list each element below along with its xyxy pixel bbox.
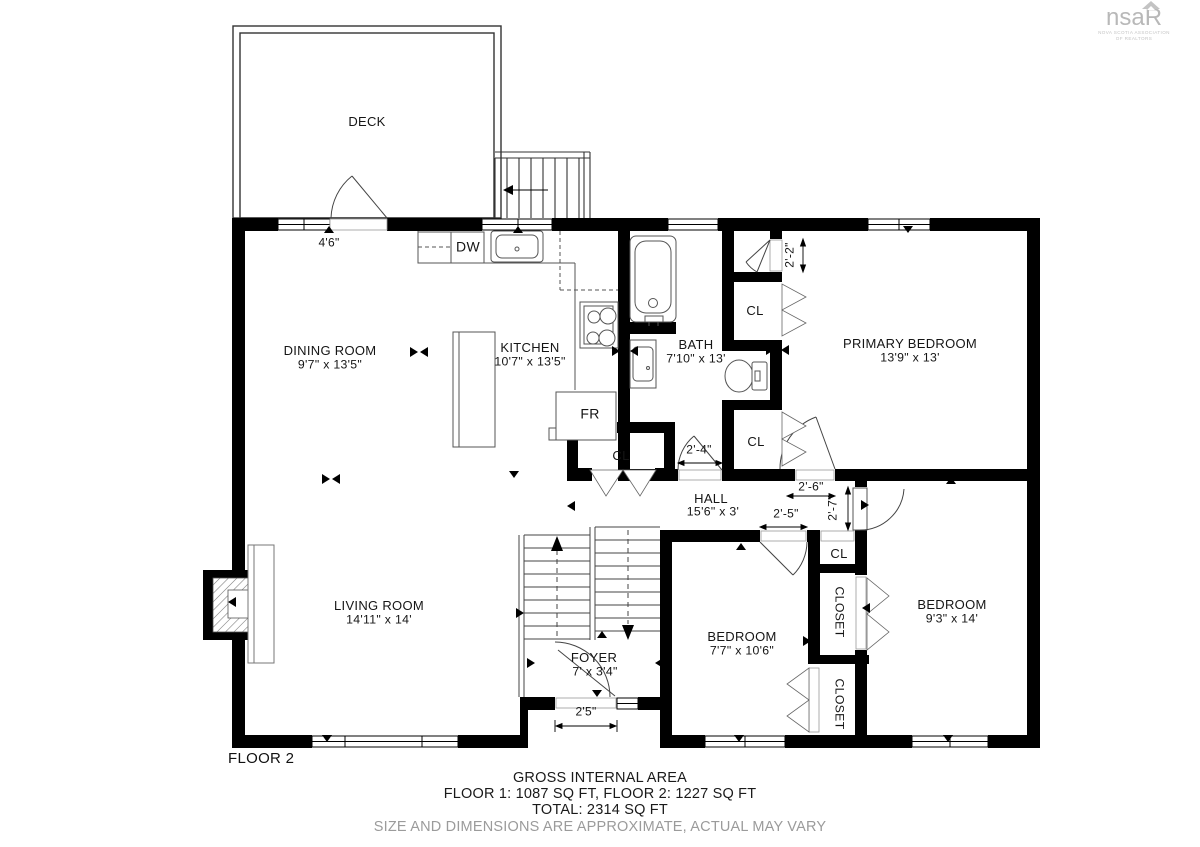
bathtub-icon — [630, 236, 676, 326]
room-label-kitchen: KITCHEN — [500, 341, 559, 355]
room-dims-dining: 9'7" x 13'5" — [298, 359, 362, 372]
footer-floor-areas: FLOOR 1: 1087 SQ FT, FLOOR 2: 1227 SQ FT — [0, 786, 1200, 802]
stairs-up-arrow-icon — [551, 536, 563, 551]
closet-label-bath-lower: CL — [747, 435, 764, 449]
room-label-bath: BATH — [679, 338, 714, 352]
dim-primary-door: 2'-6" — [798, 481, 823, 494]
kitchen-sink-icon — [491, 231, 543, 262]
floor-plan-drawing — [0, 0, 1200, 847]
closet-label-linen: CL — [830, 547, 847, 561]
room-label-foyer: FOYER — [571, 651, 617, 665]
logo-text-ns: ns — [1106, 4, 1131, 31]
room-dims-bath: 7'10" x 13' — [666, 353, 726, 366]
room-label-bedroom2: BEDROOM — [917, 598, 986, 612]
toilet-icon — [725, 360, 767, 392]
dim-deck-door: 4'6" — [318, 237, 339, 250]
closet-label-hall: CL — [612, 449, 629, 463]
closet-label-1: CLOSET — [833, 587, 846, 638]
dim-bedroom1-door: 2'-5" — [773, 508, 798, 521]
room-label-primary-bedroom: PRIMARY BEDROOM — [843, 337, 977, 351]
floor-plan-canvas: DECK DINING ROOM 9'7" x 13'5" KITCHEN 10… — [0, 0, 1200, 847]
closet-label-2: CLOSET — [833, 679, 846, 730]
dim-entry-door: 2'5" — [575, 706, 596, 719]
dishwasher-label: DW — [456, 240, 480, 255]
house-roof-inner-icon — [1147, 6, 1155, 10]
room-dims-living: 14'11" x 14' — [346, 614, 412, 627]
room-dims-hall: 15'6" x 3' — [687, 506, 739, 519]
dim-bath-door: 2'-4" — [686, 444, 711, 457]
room-dims-bedroom2: 9'3" x 14' — [926, 613, 978, 626]
room-label-living: LIVING ROOM — [334, 599, 424, 613]
footer-disclaimer: SIZE AND DIMENSIONS ARE APPROXIMATE, ACT… — [0, 819, 1200, 835]
fridge-label: FR — [580, 407, 599, 422]
stairs-down-arrow-icon — [622, 625, 634, 640]
room-dims-bedroom1: 7'7" x 10'6" — [710, 645, 774, 658]
room-label-dining: DINING ROOM — [284, 344, 377, 358]
room-label-deck: DECK — [348, 115, 385, 129]
footer-gross-area: GROSS INTERNAL AREA — [0, 770, 1200, 786]
closet-label-bath-upper: CL — [746, 304, 763, 318]
nsar-logo: nsaR NOVA SCOTIA ASSOCIATION OF REALTORS — [1086, 6, 1182, 42]
dim-bedroom2-door: 2'-7" — [827, 495, 840, 520]
deck-stairs-arrow-icon — [503, 185, 513, 195]
logo-tagline-2: OF REALTORS — [1086, 36, 1182, 42]
bath-sink-icon — [630, 340, 656, 388]
deck-stairs — [495, 152, 590, 218]
dim-primary-nook: 2'-2" — [784, 242, 797, 267]
room-dims-foyer: 7' x 3'4" — [572, 666, 617, 679]
kitchen-island — [453, 332, 495, 447]
stove-icon — [580, 302, 618, 348]
room-label-bedroom1: BEDROOM — [707, 630, 776, 644]
room-dims-kitchen: 10'7" x 13'5" — [494, 356, 565, 369]
floor-label: FLOOR 2 — [228, 750, 294, 767]
room-dims-primary-bedroom: 13'9" x 13' — [880, 352, 940, 365]
nsar-logo-wordmark: nsaR — [1106, 6, 1162, 30]
footer-total-area: TOTAL: 2314 SQ FT — [0, 802, 1200, 818]
